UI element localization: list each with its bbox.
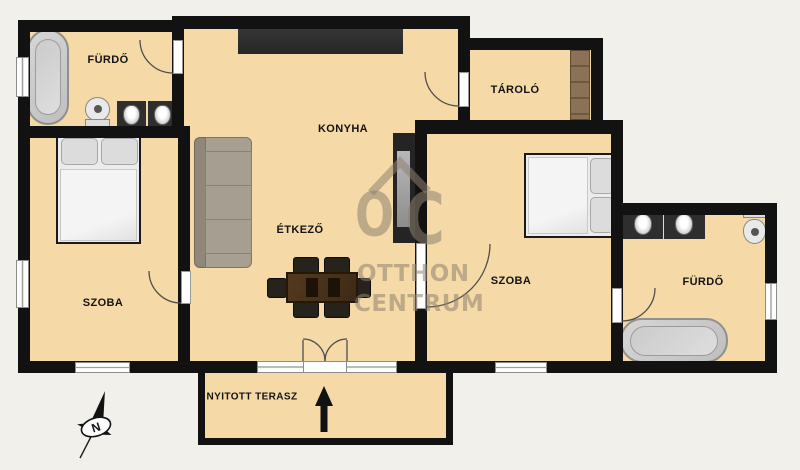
entry-arrow-icon xyxy=(315,386,333,432)
room-label-bathroom-left: FÜRDŐ xyxy=(87,54,128,66)
room-label-dining: ÉTKEZŐ xyxy=(276,224,323,236)
room-label-bedroom-right: SZOBA xyxy=(491,275,532,287)
watermark-line2: CENTRUM xyxy=(354,293,484,316)
room-label-storage: TÁROLÓ xyxy=(491,84,540,96)
plan-overlay: N xyxy=(0,0,800,470)
watermark-letter-o: O xyxy=(355,186,394,246)
room-label-kitchen: KONYHA xyxy=(318,123,368,135)
room-label-bedroom-left: SZOBA xyxy=(83,297,124,309)
room-label-bathroom-right: FÜRDŐ xyxy=(682,276,723,288)
room-label-terrace: NYITOTT TERASZ xyxy=(207,392,298,403)
floor-plan: N FÜRDŐ SZOBA KONYHA ÉTKEZŐ TÁROLÓ SZOBA… xyxy=(0,0,800,470)
watermark-letter-c: C xyxy=(405,184,445,255)
watermark-line1: OTTHON xyxy=(357,263,470,286)
compass-icon: N xyxy=(69,387,122,465)
